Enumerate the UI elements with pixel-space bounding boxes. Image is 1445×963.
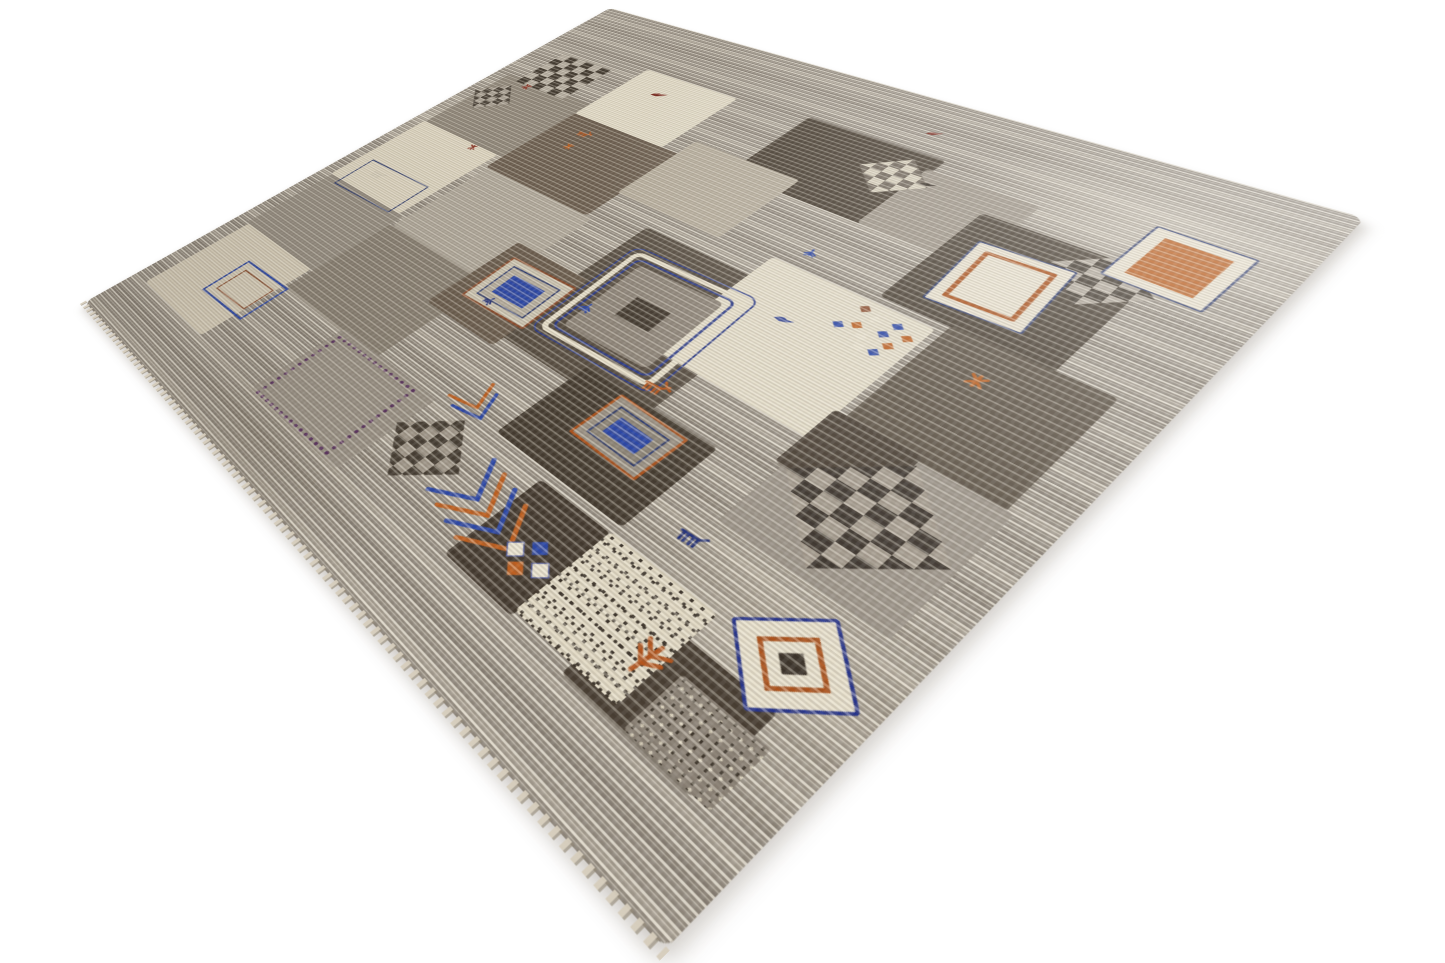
dot-diamond-icon <box>833 321 844 327</box>
dot-diamond-icon <box>901 336 913 343</box>
chevron-small <box>437 380 514 448</box>
bird-maroon-top-icon <box>922 129 945 140</box>
dot-diamond-icon <box>892 324 904 330</box>
dot-diamond-icon <box>506 542 525 557</box>
sprig-glyph-icon <box>799 246 823 259</box>
animal-glyph-icon <box>669 521 714 555</box>
horse-navy-icon <box>666 521 714 559</box>
amulet-diamond <box>731 617 860 717</box>
dot-diamond-icon <box>851 322 862 328</box>
rug-design-layer <box>85 8 1365 950</box>
dot-diamond-icon <box>860 306 871 312</box>
bird-glyph-icon <box>924 129 946 138</box>
dot-diamond-icon <box>869 316 881 322</box>
dot-diamond-icon <box>507 562 524 576</box>
rug <box>85 8 1365 950</box>
dot-diamond-icon <box>867 349 879 356</box>
dot-diamond-icon <box>532 542 548 555</box>
dot-diamond-icon <box>882 343 894 350</box>
dot-diamond-icon <box>855 333 867 339</box>
chevron-icon <box>437 380 514 448</box>
dot-diamond-icon <box>877 331 889 337</box>
rug-product-photo <box>0 0 1445 963</box>
dot-diamond-icon <box>531 563 550 579</box>
sprig-blue-2-icon <box>797 246 823 262</box>
dot-diamond-icon <box>853 344 865 351</box>
diamond-border-square <box>255 335 416 455</box>
frame-layer <box>778 653 807 675</box>
